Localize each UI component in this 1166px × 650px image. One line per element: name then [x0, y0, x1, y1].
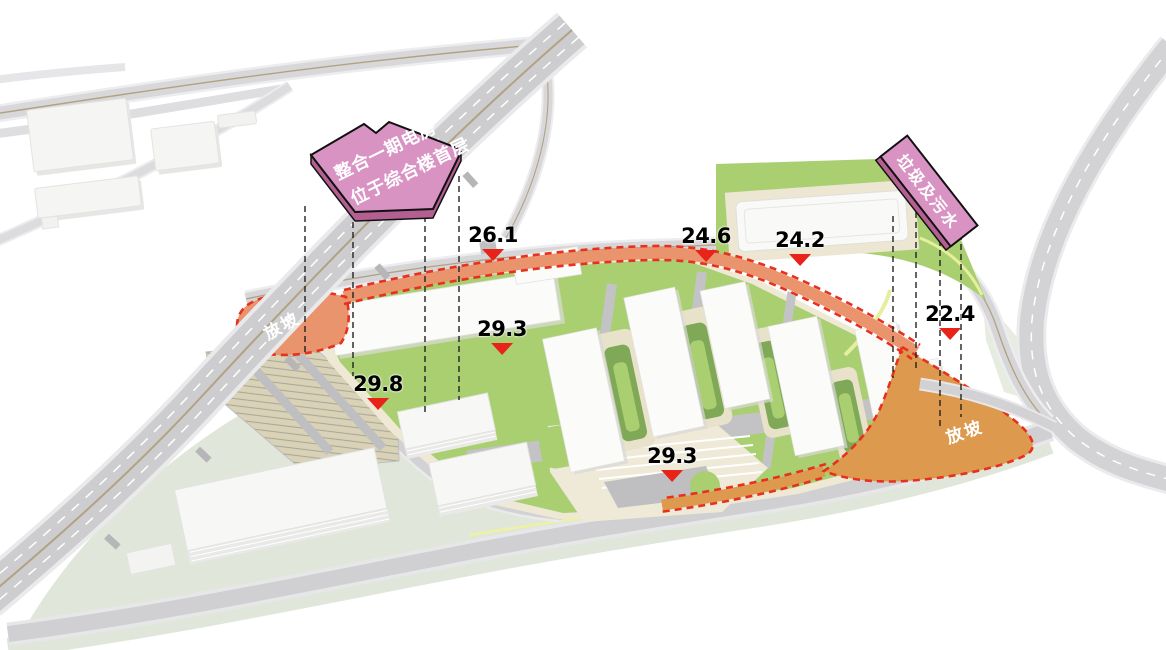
- site-plan-canvas: [0, 0, 1166, 650]
- site-plan: 整合一期电房 位于综合楼首层 垃圾及污水 放坡 放坡 26.1 24.6 24.…: [0, 0, 1166, 650]
- northeast-slab-building: [725, 179, 919, 262]
- crosswalk: [479, 239, 497, 255]
